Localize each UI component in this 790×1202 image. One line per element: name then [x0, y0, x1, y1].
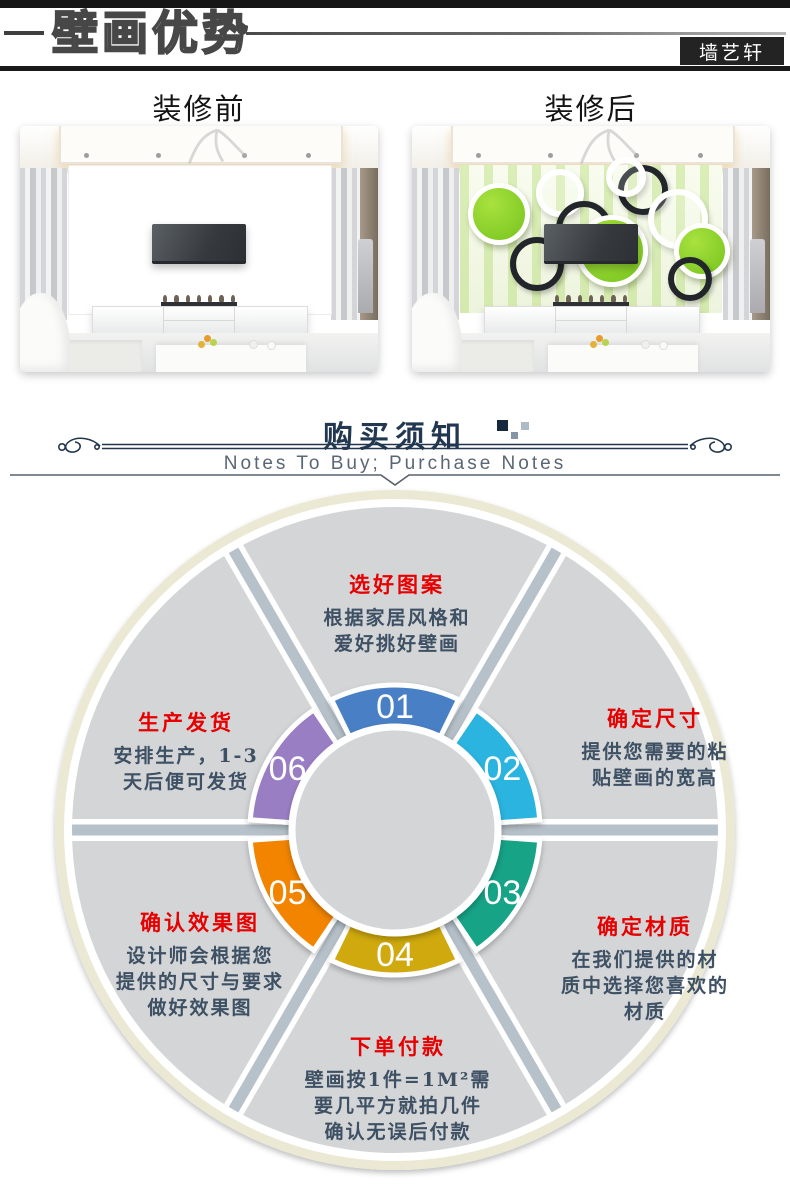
step-title: 确认效果图	[116, 907, 284, 937]
vase	[750, 239, 764, 313]
tv-cabinet	[484, 306, 701, 335]
brand-badge: 墙艺轩	[680, 37, 784, 65]
step-block-04: 下单付款 壁画按1件=1M²需 要几平方就拍几件 确认无误后付款	[305, 1031, 492, 1145]
tv	[544, 224, 637, 264]
step-number-01: 01	[376, 688, 414, 726]
deco-square-light	[521, 422, 529, 430]
header-divider	[0, 66, 790, 71]
step-block-06: 生产发货 安排生产，1-3 天后便可发货	[113, 707, 258, 795]
chandelier	[178, 128, 257, 165]
header-rule	[246, 32, 786, 35]
coffee-table	[548, 345, 698, 372]
before-photo	[20, 126, 378, 372]
step-number-06: 06	[269, 750, 307, 788]
step-title: 确定材质	[561, 911, 729, 941]
step-number-02: 02	[483, 750, 521, 788]
center-hub	[292, 727, 498, 933]
page-title: 壁画优势	[52, 6, 252, 60]
coffee-table	[156, 345, 306, 372]
step-title: 选好图案	[323, 569, 470, 599]
header-dash-line	[4, 31, 44, 35]
step-block-01: 选好图案 根据家居风格和 爱好挑好壁画	[323, 569, 470, 657]
tv-cabinet	[92, 306, 309, 335]
step-block-05: 确认效果图 设计师会根据您 提供的尺寸与要求 做好效果图	[116, 907, 284, 1021]
before-label: 装修前	[20, 86, 378, 128]
step-number-04: 04	[376, 936, 414, 974]
step-block-02: 确定尺寸 提供您需要的粘 贴壁画的宽高	[581, 703, 728, 791]
decor-bottles	[163, 295, 235, 302]
tv	[152, 224, 245, 264]
after-photo	[412, 126, 770, 372]
step-number-03: 03	[483, 874, 521, 912]
after-label: 装修后	[412, 86, 770, 128]
step-title: 确定尺寸	[581, 703, 728, 733]
vase	[358, 239, 372, 313]
decor-bottles	[555, 295, 627, 302]
step-title: 下单付款	[305, 1031, 492, 1061]
step-block-03: 确定材质 在我们提供的材 质中选择您喜欢的 材质	[561, 911, 729, 1025]
step-title: 生产发货	[113, 707, 258, 737]
